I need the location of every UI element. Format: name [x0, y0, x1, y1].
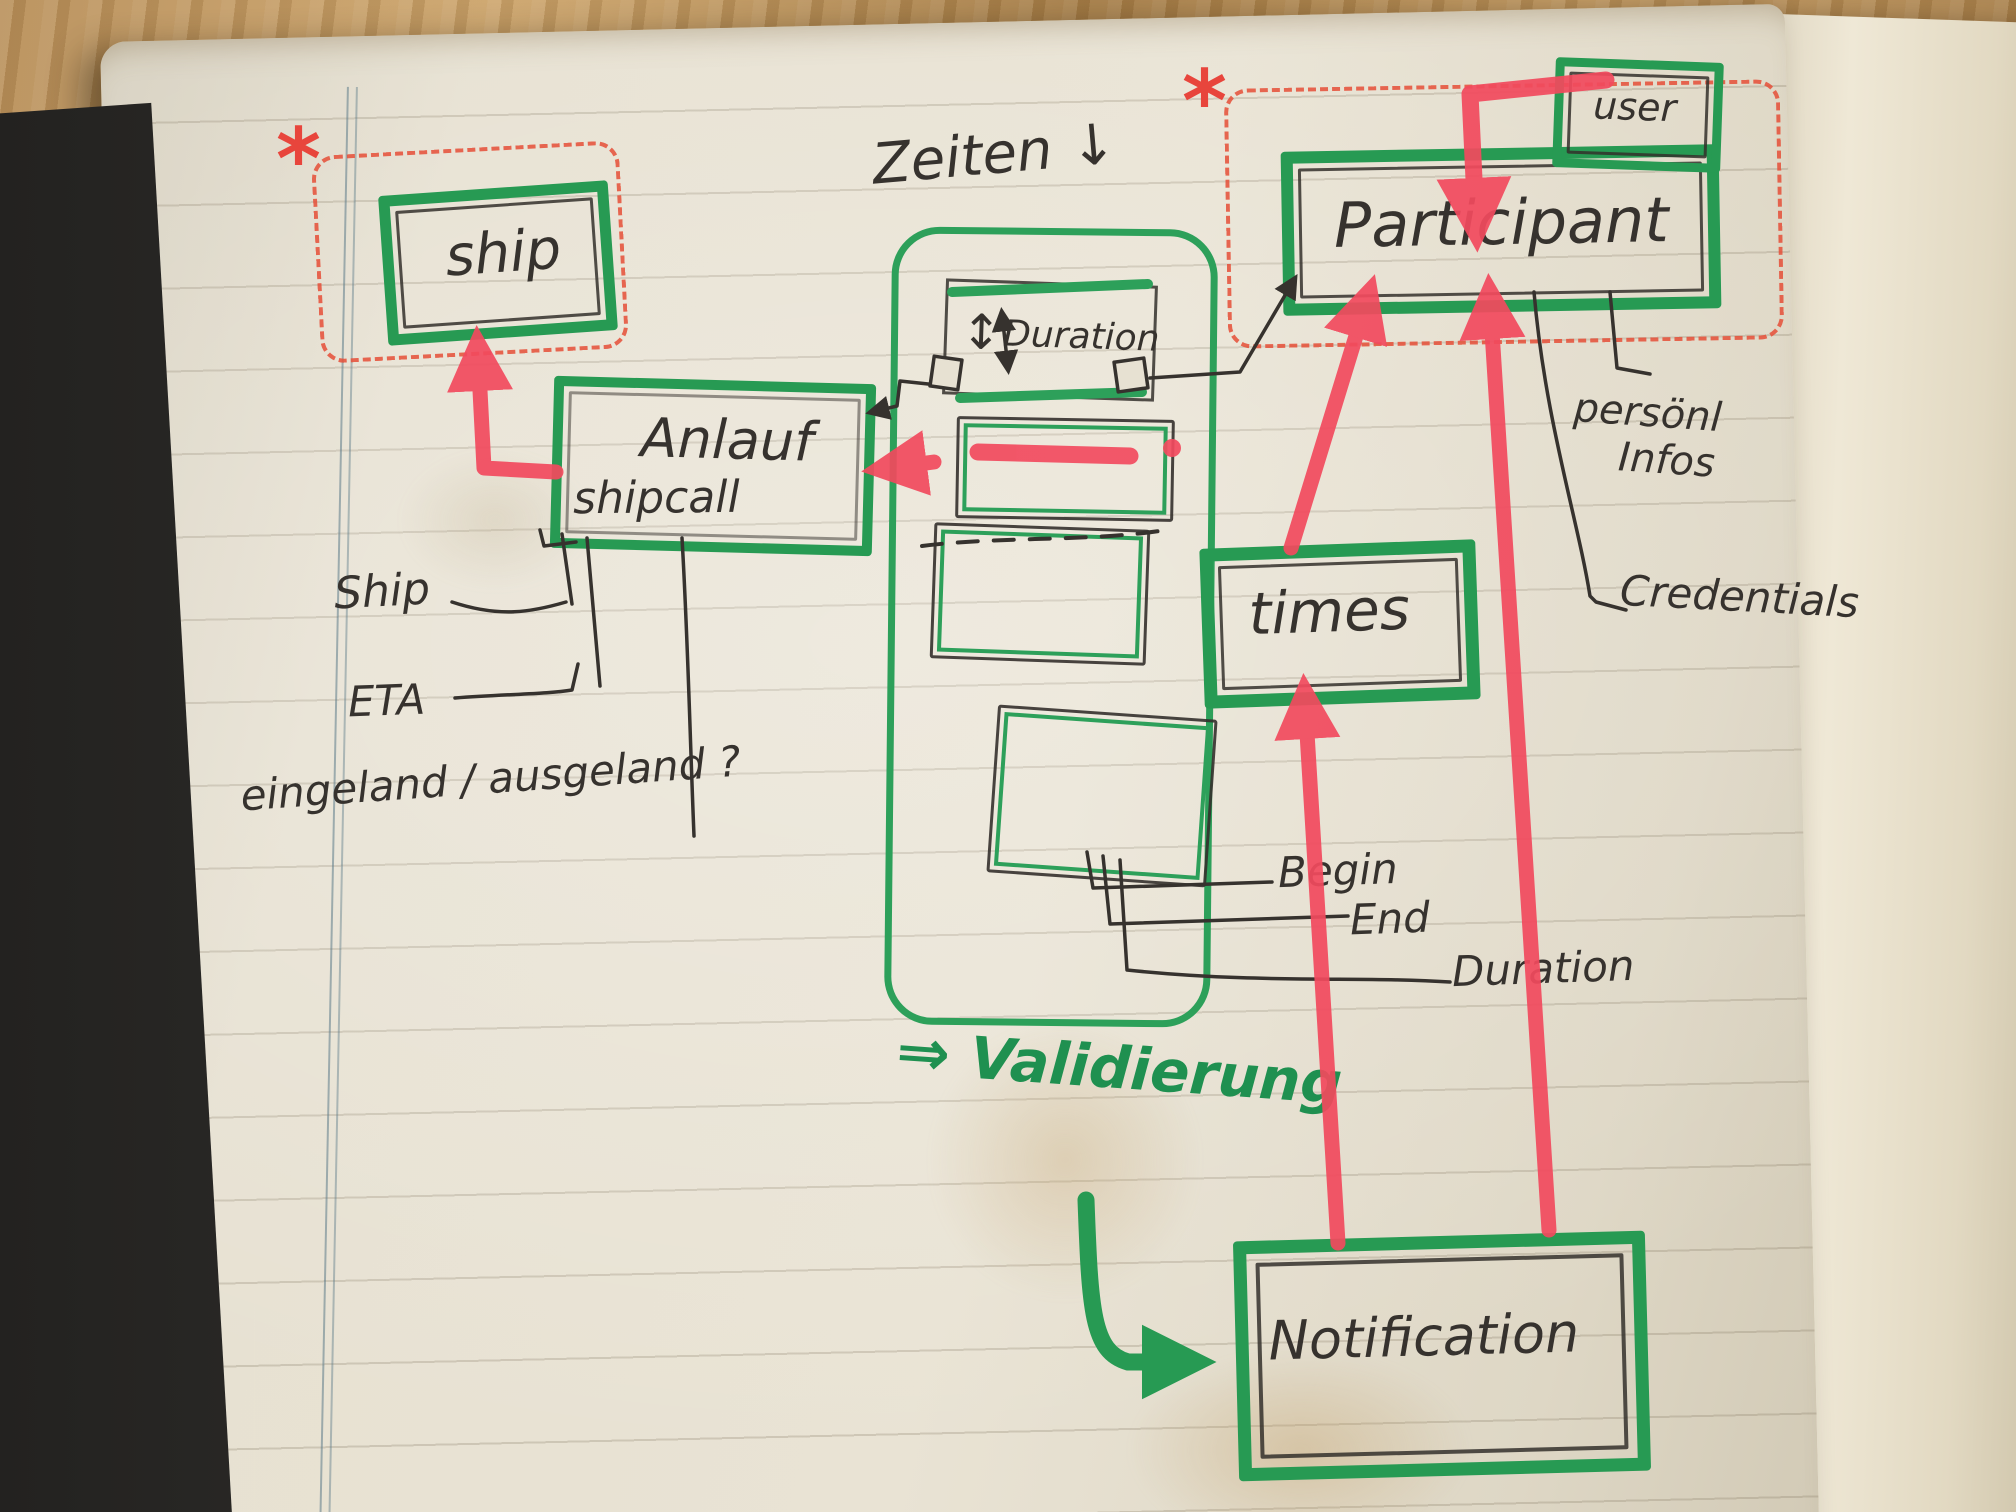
shipcall-attr-stem-3 [682, 538, 694, 836]
participant-credentials-line [1534, 292, 1626, 610]
participant-infos-line [1610, 292, 1650, 374]
red-arrow-dash-to-shipcall [978, 452, 1130, 456]
ship-attr-line [452, 602, 566, 612]
shipcall-attr-stem-2 [587, 538, 600, 686]
red-arrow-notification-to-participant [1490, 300, 1549, 1230]
dashed-divider-line [922, 530, 1166, 546]
red-arrow-shipcall-to-ship [478, 352, 556, 472]
notebook-photo: * * ship Anlauf shipcall ↕ Duration Part… [0, 0, 2016, 1512]
red-arrow-times-to-participant [1291, 300, 1367, 548]
eta-attr-line [455, 664, 578, 698]
begin-attr-line [1087, 852, 1272, 888]
red-arrow-notification-to-times [1305, 700, 1338, 1243]
duration-green-top-edge [952, 284, 1148, 292]
duration-right-connector-square [1114, 358, 1148, 392]
green-arrow-to-notification [1086, 1200, 1186, 1362]
diagram-connectors [0, 0, 2016, 1512]
duration-green-bottom-edge [960, 392, 1142, 398]
duration-updown-arrow-icon [1002, 314, 1008, 368]
red-arrow-dot [1163, 439, 1181, 457]
connector-duration-to-participant [1150, 280, 1294, 378]
duration-left-connector-square [930, 356, 962, 390]
red-arrow-user-to-participant [1470, 80, 1606, 222]
shipcall-corner-tick [540, 530, 576, 546]
red-arrowhead-to-shipcall [888, 462, 934, 468]
